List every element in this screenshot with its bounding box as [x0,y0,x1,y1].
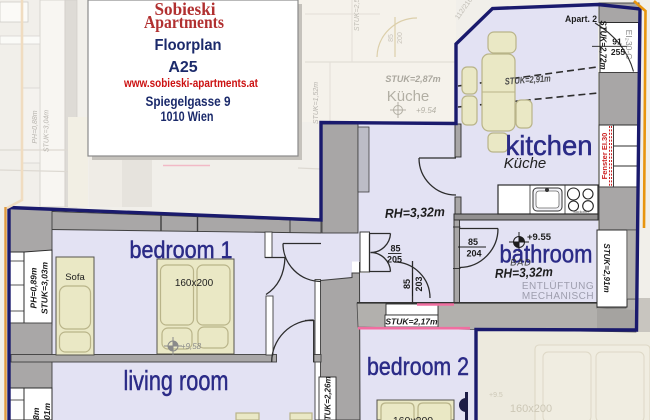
svg-text:bedroom 1: bedroom 1 [130,237,233,264]
svg-text:STUK=3,01m: STUK=3,01m [42,402,52,420]
svg-text:PH=0,89m: PH=0,89m [29,267,39,308]
svg-text:A25: A25 [168,59,197,76]
svg-text:Küche: Küche [387,88,430,105]
svg-text:Fenster EI.30: Fenster EI.30 [600,133,609,180]
svg-text:PH=0,88m: PH=0,88m [31,407,41,420]
svg-text:203: 203 [414,276,424,291]
svg-text:STUK=3,03m: STUK=3,03m [40,261,50,314]
svg-text:living room: living room [124,365,229,396]
svg-text:Spiegelgasse 9: Spiegelgasse 9 [146,94,231,109]
svg-text:MECHANISCH: MECHANISCH [522,291,594,302]
svg-text:91: 91 [612,37,622,47]
svg-text:RH=3,32m: RH=3,32m [385,204,446,221]
svg-text:Apart. 2: Apart. 2 [565,14,597,24]
svg-text:+9,58: +9,58 [181,342,202,351]
svg-text:STUK=2,26m: STUK=2,26m [324,376,333,420]
svg-text:+9.54: +9.54 [416,106,437,115]
svg-text:1010 Wien: 1010 Wien [161,109,214,124]
svg-text:STUK=3,04m: STUK=3,04m [44,110,51,152]
svg-text:+9.5: +9.5 [489,392,503,399]
svg-text:85: 85 [390,244,400,254]
svg-text:Küche: Küche [504,155,547,172]
svg-text:PH=0,88m: PH=0,88m [32,110,39,143]
svg-text:RH=3,32m: RH=3,32m [495,264,554,281]
svg-text:bedroom 2: bedroom 2 [367,353,469,381]
svg-text:85: 85 [402,279,412,289]
svg-text:205: 205 [387,255,402,265]
svg-text:Sofa: Sofa [65,272,85,283]
svg-text:255: 255 [611,47,625,57]
svg-text:STUK=1,52m: STUK=1,52m [313,82,320,124]
svg-text:160x200: 160x200 [175,278,214,289]
svg-text:STUK=2,91m: STUK=2,91m [602,243,611,292]
svg-text:STUK=2,72m: STUK=2,72m [599,20,608,69]
svg-text:200: 200 [397,32,404,44]
svg-text:EI₂30-C: EI₂30-C [624,30,634,60]
svg-text:204: 204 [466,249,481,259]
svg-text:85: 85 [468,237,478,247]
svg-text:85: 85 [388,34,395,42]
svg-text:Floorplan: Floorplan [155,37,222,54]
svg-text:STUK=2,87m: STUK=2,87m [385,74,440,84]
svg-text:Backofen: Backofen [574,210,589,214]
svg-text:160x200: 160x200 [393,415,433,420]
svg-text:www.sobieski-apartments.at: www.sobieski-apartments.at [123,76,258,90]
svg-text:160x200: 160x200 [510,403,552,415]
svg-text:STUK=2,17m: STUK=2,17m [385,317,438,327]
svg-text:STUK=2,53m: STUK=2,53m [354,0,361,31]
svg-text:Apartments: Apartments [144,12,224,32]
